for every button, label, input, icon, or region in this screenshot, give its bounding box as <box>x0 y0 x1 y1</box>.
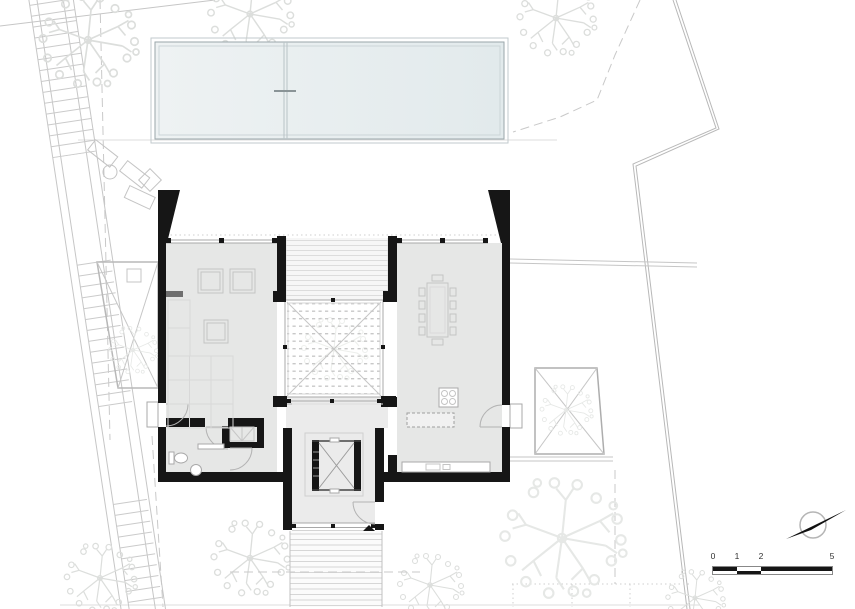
toilet-icon <box>175 453 188 463</box>
north-arrow-icon <box>786 510 846 539</box>
scale-label-0: 0 <box>711 551 716 561</box>
tree-icon <box>500 478 626 598</box>
tree-icon <box>211 520 291 596</box>
site-plan-page: { "scale_bar": { "labels": ["0", "1", "2… <box>0 0 855 609</box>
tree-icon <box>540 385 593 435</box>
pool-water <box>155 42 504 139</box>
vanity-counter <box>198 444 224 449</box>
sink-icon <box>191 465 202 476</box>
east-door-landing <box>510 404 522 428</box>
scale-label-2: 2 <box>759 551 764 561</box>
stove-icon <box>439 388 458 407</box>
dining-kitchen-floor <box>397 243 502 472</box>
hall-floor <box>286 397 388 428</box>
kitchen-island <box>407 413 454 427</box>
toilet-icon <box>169 452 174 464</box>
swimming-pool <box>151 38 508 143</box>
tree-icon <box>517 0 597 56</box>
kitchen-counter <box>402 462 490 472</box>
pool-terrace-furniture <box>88 140 162 210</box>
wall-stub <box>166 291 183 297</box>
scale-bar: 0 1 2 5 <box>712 551 838 583</box>
west-door-landing <box>147 402 158 427</box>
scale-label-1: 1 <box>735 551 740 561</box>
site-plan-canvas <box>0 0 855 609</box>
scale-label-5: 5 <box>830 551 835 561</box>
main-building <box>147 190 522 533</box>
central-courtyard <box>285 300 383 404</box>
entry-walkway <box>230 531 420 607</box>
scale-bar-rule <box>712 566 833 575</box>
tree-icon <box>398 554 465 609</box>
perimeter-stair <box>28 0 169 609</box>
